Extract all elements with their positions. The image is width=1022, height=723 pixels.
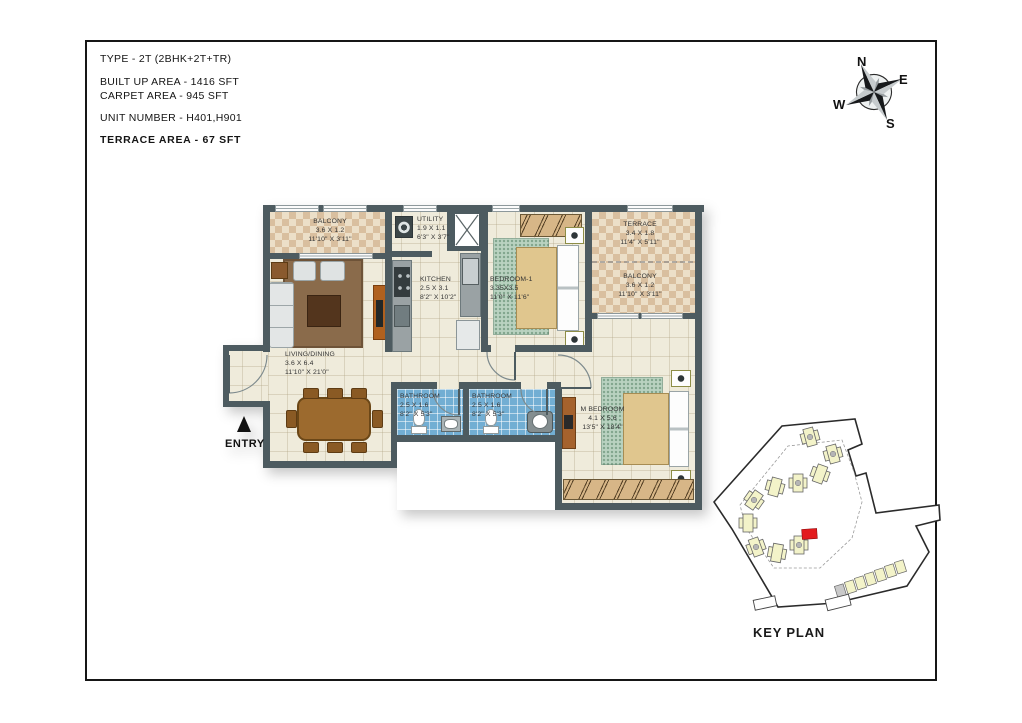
- room-dim-ft: 8'2" X 5'3": [472, 410, 512, 419]
- compass-north-label: N: [857, 54, 866, 69]
- room-name: BEDROOM-1: [490, 275, 533, 284]
- carpet-area-line: CARPET AREA - 945 SFT: [100, 90, 242, 102]
- room-dim-m: 1.9 X 1.1: [417, 224, 450, 233]
- room-label-bathroom-1: BATHROOM 2.5 X 1.6 8'2" X 5'3": [400, 392, 440, 420]
- unit-floor-plan: BALCONY 3.6 X 1.2 11'10" X 3'11" UTILITY…: [215, 205, 702, 510]
- room-dim-ft: 11'0" X 11'6": [490, 293, 533, 302]
- room-name: BATHROOM: [400, 392, 440, 401]
- room-name: KITCHEN: [420, 275, 456, 284]
- unit-number-line: UNIT NUMBER - H401,H901: [100, 112, 242, 124]
- room-name: LIVING/DINING: [285, 350, 335, 359]
- compass-west-label: W: [833, 97, 846, 112]
- room-name: BATHROOM: [472, 392, 512, 401]
- built-up-area-line: BUILT UP AREA - 1416 SFT: [100, 76, 242, 88]
- key-plan-map: [702, 410, 942, 618]
- compass-star: [833, 51, 915, 133]
- room-dim-m: 2.5 X 1.6: [400, 401, 440, 410]
- highlighted-unit: [802, 528, 818, 539]
- room-dim-ft: 8'2" X 5'3": [400, 410, 440, 419]
- floor-plan-sheet: TYPE - 2T (2BHK+2T+TR) BUILT UP AREA - 1…: [0, 0, 1022, 723]
- title-block: TYPE - 2T (2BHK+2T+TR) BUILT UP AREA - 1…: [100, 53, 242, 146]
- type-line: TYPE - 2T (2BHK+2T+TR): [100, 53, 242, 65]
- room-label-terrace: TERRACE 3.4 X 1.8 11'4" X 5'11": [605, 220, 675, 248]
- room-dim-m: 4.1 X 5.6: [565, 414, 640, 423]
- room-dim-ft: 11'10" X 3'11": [290, 235, 370, 244]
- room-name: TERRACE: [605, 220, 675, 229]
- room-name: BALCONY: [605, 272, 675, 281]
- room-label-balcony-top-left: BALCONY 3.6 X 1.2 11'10" X 3'11": [290, 217, 370, 245]
- room-label-balcony-right: BALCONY 3.6 X 1.2 11'10" X 3'11": [605, 272, 675, 300]
- compass-south-label: S: [886, 116, 895, 131]
- room-dim-m: 3.6 X 1.2: [290, 226, 370, 235]
- compass-east-label: E: [899, 72, 908, 87]
- room-dim-ft: 11'4" X 5'11": [605, 238, 675, 247]
- room-label-kitchen: KITCHEN 2.5 X 3.1 8'2" X 10'2": [420, 275, 456, 303]
- room-dim-m: 3.6 X 6.4: [285, 359, 335, 368]
- room-label-living-dining: LIVING/DINING 3.6 X 6.4 11'10" X 21'0": [285, 350, 335, 378]
- room-name: BALCONY: [290, 217, 370, 226]
- room-dim-m: 3.6 X 1.2: [605, 281, 675, 290]
- room-label-bathroom-2: BATHROOM 2.5 X 1.6 8'2" X 5'3": [472, 392, 512, 420]
- room-dim-m: 3.4 X 1.8: [605, 229, 675, 238]
- shaft-x-icon: [456, 215, 478, 245]
- room-dim-ft: 11'10" X 21'0": [285, 368, 335, 377]
- entry-arrow-icon: [237, 416, 251, 432]
- room-name: UTILITY: [417, 215, 450, 224]
- room-dim-m: 2.5 X 1.6: [472, 401, 512, 410]
- room-name: M BEDROOM: [565, 405, 640, 414]
- room-dim-m: 3.35X3.5: [490, 284, 533, 293]
- room-label-utility: UTILITY 1.9 X 1.1 6'3" X 3'7": [417, 215, 450, 243]
- room-dim-ft: 11'10" X 3'11": [605, 290, 675, 299]
- compass-rose: N E W S: [826, 44, 922, 144]
- terrace-area-line: TERRACE AREA - 67 SFT: [100, 134, 242, 146]
- room-dim-ft: 13'5" X 18'4": [565, 423, 640, 432]
- room-dim-ft: 6'3" X 3'7": [417, 233, 450, 242]
- room-dim-m: 2.5 X 3.1: [420, 284, 456, 293]
- room-label-bedroom-1: BEDROOM-1 3.35X3.5 11'0" X 11'6": [490, 275, 533, 303]
- key-plan-label: KEY PLAN: [734, 625, 844, 640]
- entry-label: ENTRY: [225, 438, 265, 450]
- room-dim-ft: 8'2" X 10'2": [420, 293, 456, 302]
- room-label-master-bedroom: M BEDROOM 4.1 X 5.6 13'5" X 18'4": [565, 405, 640, 433]
